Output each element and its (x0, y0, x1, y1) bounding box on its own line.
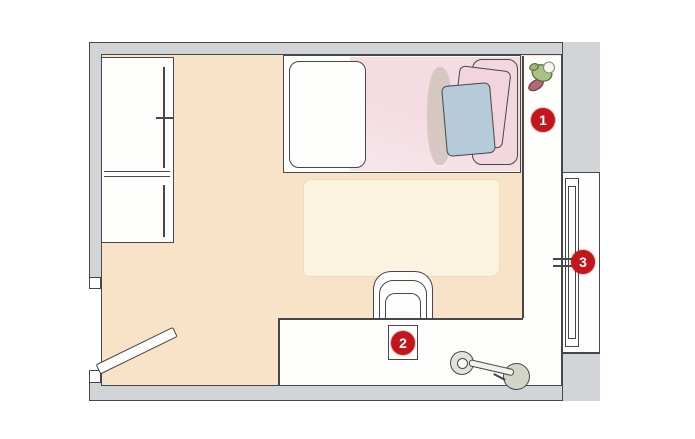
marker-2: 2 (391, 331, 415, 355)
bed (283, 55, 521, 173)
blue-pillow (441, 82, 496, 157)
wall-section-top-right (562, 42, 600, 173)
wardrobe-handle (156, 117, 173, 119)
wardrobe-shelf-divider (104, 171, 170, 177)
wardrobe (101, 57, 174, 243)
marker-3: 3 (571, 250, 595, 274)
rug (303, 179, 500, 277)
scooter-handlebar-hub (457, 358, 468, 369)
door-jamb-top (89, 277, 101, 289)
plant-icon (527, 58, 559, 94)
wardrobe-door-line-bottom (163, 185, 165, 237)
desk-chair-seat (385, 293, 421, 320)
desk-edge (278, 318, 280, 385)
white-pillow (289, 61, 366, 168)
wall-section-bottom-right (562, 353, 600, 401)
side-shelf-edge (522, 56, 524, 318)
marker-1: 1 (531, 108, 555, 132)
desk-edge (278, 318, 523, 320)
floor-plan: 1 2 3 (0, 0, 695, 439)
door-opening (85, 289, 101, 370)
